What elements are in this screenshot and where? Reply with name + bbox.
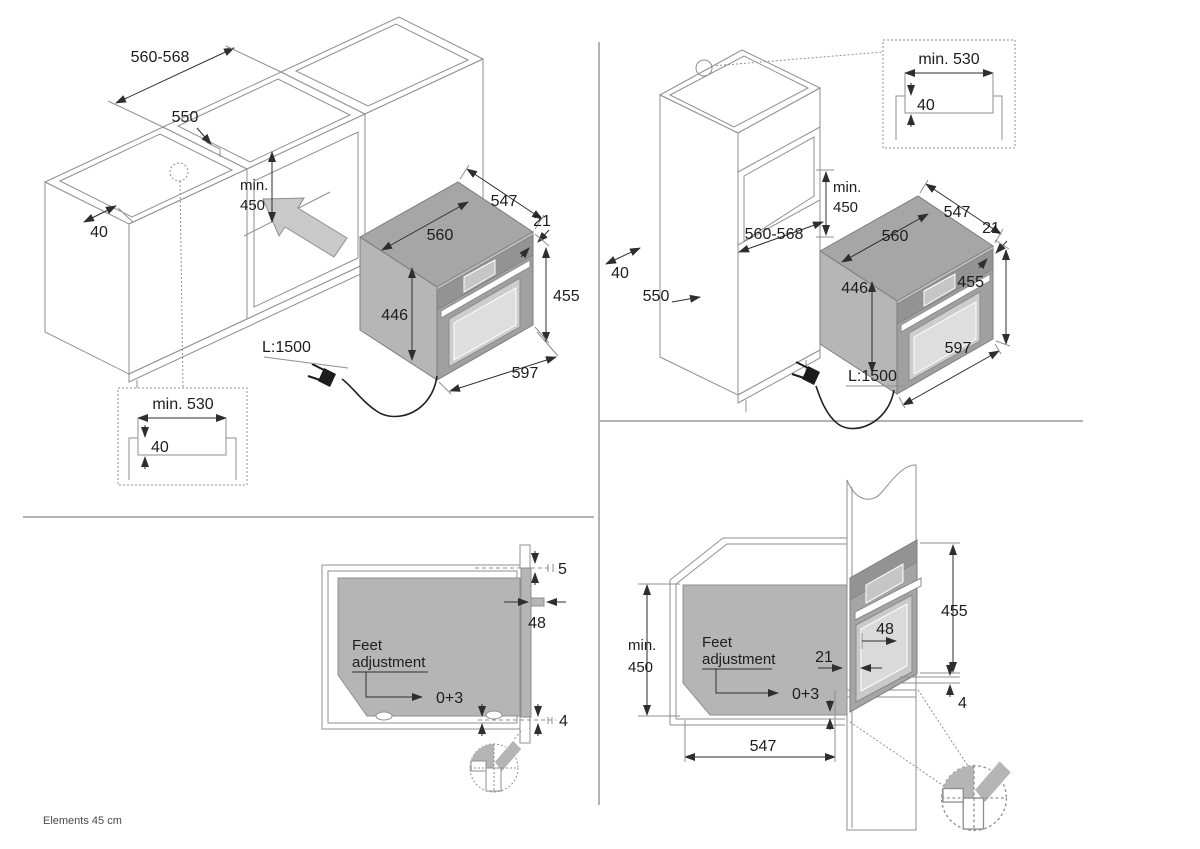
dim-cord-length: L:1500 [848,368,897,385]
dim-min-label: min. [240,177,268,194]
dim-niche-width: 560-568 [131,49,190,66]
dim-min-label: min. [833,179,861,196]
detail-width-label: min. 530 [918,51,979,68]
tall-cabinet-installation-view: min. 530 40 min. 450 560-568 40 550 [606,40,1015,429]
dim-niche-depth: 550 [643,288,670,305]
dim-oven-depth: 547 [491,193,518,210]
dim-oven-depth: 547 [750,738,777,755]
plan-view: 5 48 4 Feet adjustment 0+3 [322,545,568,792]
door-edge-top [520,545,530,568]
dim-niche-depth: 550 [172,109,199,126]
side-section-view: min. 450 455 48 21 4 547 Feet [628,465,1012,830]
dim-min-value: 450 [628,659,653,676]
dim-min-value: 450 [833,199,858,216]
detail-recess-label: 40 [151,439,169,456]
dim-body-height: 446 [381,307,408,324]
feet-adjustment-range: 0+3 [436,690,463,707]
dim-front-lip: 21 [815,649,833,666]
dim-min-value: 450 [240,197,265,214]
dim-min-label: min. [628,637,656,654]
tr-detail: min. 530 40 [883,40,1015,148]
dim-total-height: 455 [553,288,580,305]
dim-cord-length: L:1500 [262,339,311,356]
installation-diagram-sheet: 560-568 550 min. 450 40 547 21 560 446 [0,0,1200,849]
dim-oven-width: 560 [427,227,454,244]
base-cabinet-installation-view: 560-568 550 min. 450 40 547 21 560 446 [45,17,580,485]
tr-power-cord: L:1500 [792,362,906,429]
power-plug-icon [318,368,336,387]
oven-door-plan [521,568,531,717]
dim-bottom-gap: 4 [958,695,967,712]
dim-oven-width: 560 [882,228,909,245]
dim-front-lip: 21 [982,220,1000,237]
feet-adjustment-line2: adjustment [352,654,426,671]
detail-width-label: min. 530 [152,396,213,413]
dim-total-height: 455 [941,603,968,620]
dim-front-recess: 40 [90,224,108,241]
feet-adjustment-range: 0+3 [792,686,819,703]
feet-adjustment-line1: Feet [352,637,383,654]
dim-body-height: 446 [841,280,868,297]
dim-handle-projection: 48 [876,621,894,638]
diagram-canvas: 560-568 550 min. 450 40 547 21 560 446 [0,0,1200,849]
dim-handle-projection: 48 [528,615,546,632]
sheet-footer-note: Elements 45 cm [43,815,122,827]
dim-niche-width: 560-568 [745,226,804,243]
dim-front-width: 597 [945,340,972,357]
detail-recess-label: 40 [917,97,935,114]
dim-front-lip: 21 [533,213,551,230]
dim-oven-depth: 547 [944,204,971,221]
tl-recess-detail: min. 530 40 [118,388,247,485]
dim-total-height: 455 [957,274,984,291]
oven-foot [486,711,502,719]
door-edge-bottom [520,717,530,743]
dim-front-width: 597 [512,365,539,382]
dim-side-recess: 40 [611,265,629,282]
oven-foot [376,712,392,720]
feet-adjustment-line2: adjustment [702,651,776,668]
power-plug-icon [802,366,820,385]
dim-top-gap: 5 [558,561,567,578]
dim-bottom-gap: 4 [559,713,568,730]
handle-projection-tab [531,598,544,606]
feet-adjustment-line1: Feet [702,634,733,651]
